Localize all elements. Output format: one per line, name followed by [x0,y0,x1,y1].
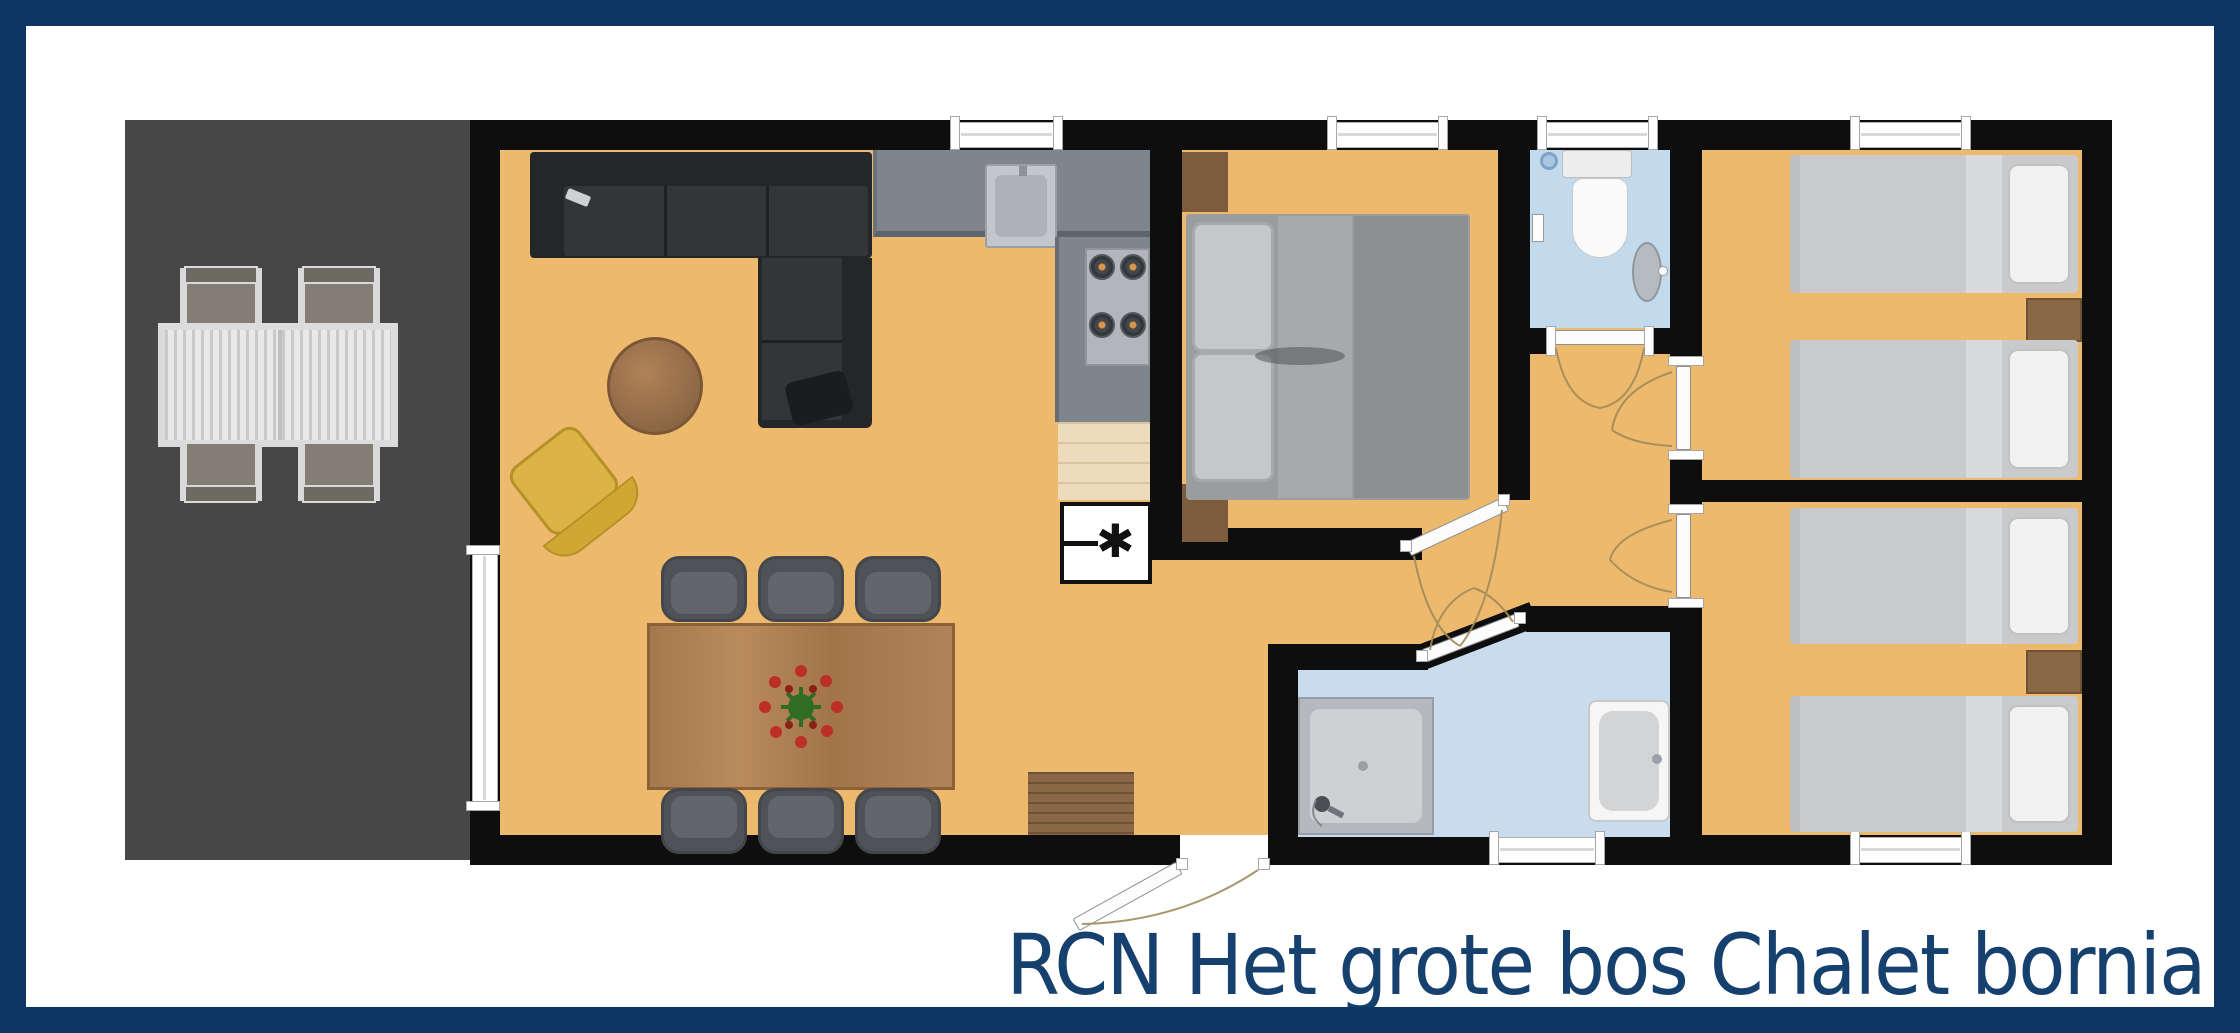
outer-frame [0,0,2240,1033]
floorplan-image: ✱ [0,0,2240,1033]
